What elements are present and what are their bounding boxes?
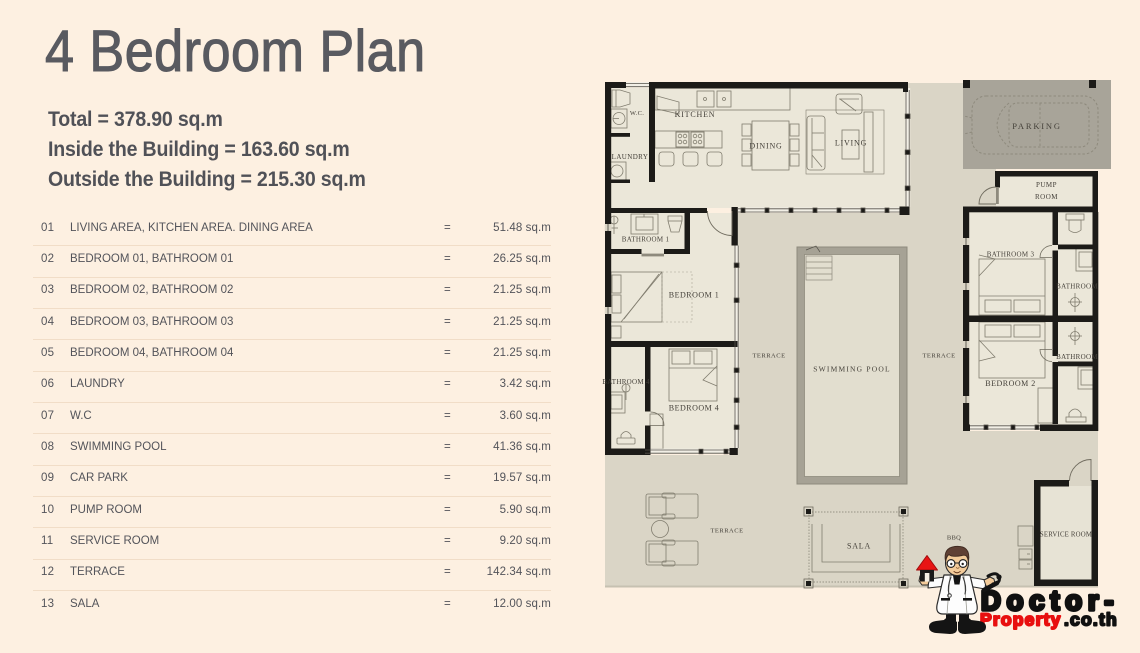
svg-text:BATHROOM: BATHROOM: [1056, 283, 1098, 291]
svg-text:W.C.: W.C.: [630, 110, 644, 117]
svg-text:TERRACE: TERRACE: [710, 528, 743, 535]
svg-text:BATHROOM 3: BATHROOM 3: [987, 251, 1035, 259]
svg-text:SWIMMING POOL: SWIMMING POOL: [813, 365, 890, 374]
svg-text:.co.th: .co.th: [1064, 610, 1118, 630]
svg-text:KITCHEN: KITCHEN: [675, 110, 716, 119]
svg-text:BATHROOM 4: BATHROOM 4: [602, 378, 650, 386]
svg-text:BEDROOM 4: BEDROOM 4: [669, 404, 720, 413]
svg-text:SERVICE ROOM: SERVICE ROOM: [1040, 532, 1092, 539]
svg-text:BEDROOM 1: BEDROOM 1: [669, 291, 720, 300]
svg-text:SALA: SALA: [847, 542, 871, 551]
svg-text:TERRACE: TERRACE: [752, 353, 785, 360]
svg-text:PUMP: PUMP: [1036, 181, 1057, 189]
svg-text:BATHROOM: BATHROOM: [1056, 353, 1098, 361]
svg-text:ROOM: ROOM: [1035, 193, 1058, 201]
svg-text:BBQ: BBQ: [947, 535, 961, 542]
svg-text:LIVING: LIVING: [835, 139, 867, 148]
svg-text:LAUNDRY: LAUNDRY: [612, 153, 649, 161]
svg-text:TERRACE: TERRACE: [922, 353, 955, 360]
svg-text:BEDROOM 2: BEDROOM 2: [985, 379, 1036, 388]
svg-text:DINING: DINING: [749, 142, 782, 151]
svg-text:BATHROOM 1: BATHROOM 1: [622, 236, 670, 244]
svg-text:PARKING: PARKING: [1012, 121, 1062, 131]
svg-text:Property: Property: [980, 610, 1062, 630]
